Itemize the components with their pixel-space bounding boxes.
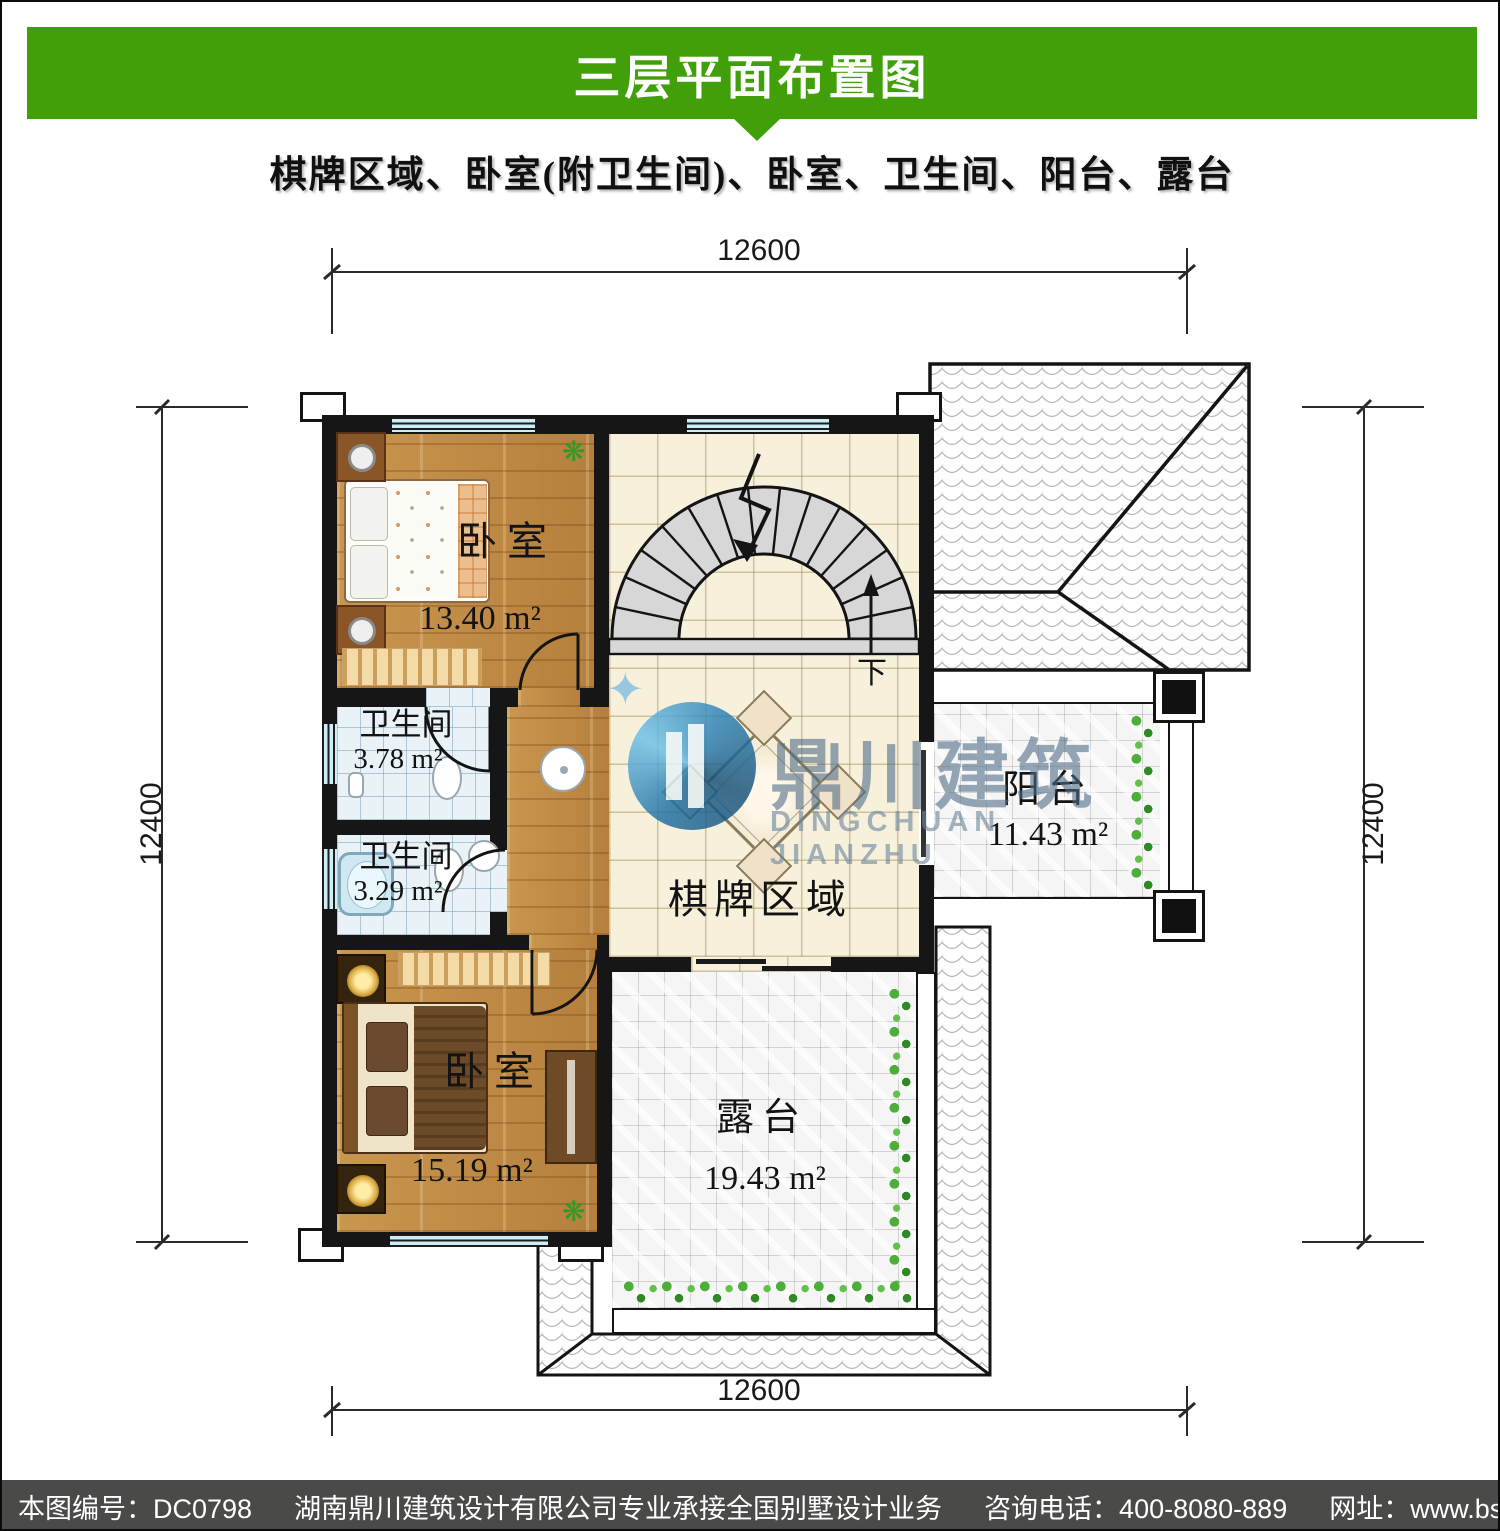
room-label-bath-top: 卫生间 xyxy=(326,708,486,742)
title-banner: 三层平面布置图 xyxy=(27,27,1477,119)
room-area-bedroom-top: 13.40 m² xyxy=(370,600,590,637)
banner-pointer-icon xyxy=(734,119,780,141)
room-area-bedroom-bottom: 15.19 m² xyxy=(362,1152,582,1189)
footer-bar: 本图编号：DC0798 湖南鼎川建筑设计有限公司专业承接全国别墅设计业务 咨询电… xyxy=(2,1480,1500,1531)
dimension-left: 12400 xyxy=(135,734,169,914)
room-area-terrace: 19.43 m² xyxy=(655,1160,875,1197)
room-label-bath-bottom: 卫生间 xyxy=(326,840,486,874)
room-area-balcony: 11.43 m² xyxy=(938,816,1158,853)
door-swings xyxy=(426,634,597,1014)
room-label-balcony: 阳台 xyxy=(968,770,1128,812)
footer-phone: 咨询电话：400-8080-889 xyxy=(984,1487,1287,1526)
subtitle: 棋牌区域、卧室(附卫生间)、卧室、卫生间、阳台、露台 xyxy=(2,144,1500,198)
room-label-bedroom-top: 卧室 xyxy=(427,520,587,564)
room-label-bedroom-bottom: 卧室 xyxy=(414,1050,574,1094)
footer-company: 湖南鼎川建筑设计有限公司专业承接全国别墅设计业务 xyxy=(294,1487,942,1526)
dimension-bottom: 12600 xyxy=(659,1374,859,1408)
floor-plan-page: ❋ ❋ xyxy=(0,0,1500,1531)
stair-down-label: 下 xyxy=(854,657,890,690)
footer-drawing-number: 本图编号：DC0798 xyxy=(18,1487,252,1526)
dimension-top: 12600 xyxy=(659,234,859,268)
room-label-terrace: 露台 xyxy=(682,1098,842,1140)
room-area-bath-bottom: 3.29 m² xyxy=(318,876,478,908)
room-label-chess-area: 棋牌区域 xyxy=(610,878,910,922)
dimension-right: 12400 xyxy=(1357,734,1391,914)
page-title: 三层平面布置图 xyxy=(574,39,931,108)
footer-website: 网址：www.bstzcs.com xyxy=(1329,1487,1500,1526)
stairs-and-door-linework xyxy=(2,2,1500,1531)
room-area-bath-top: 3.78 m² xyxy=(318,744,478,776)
